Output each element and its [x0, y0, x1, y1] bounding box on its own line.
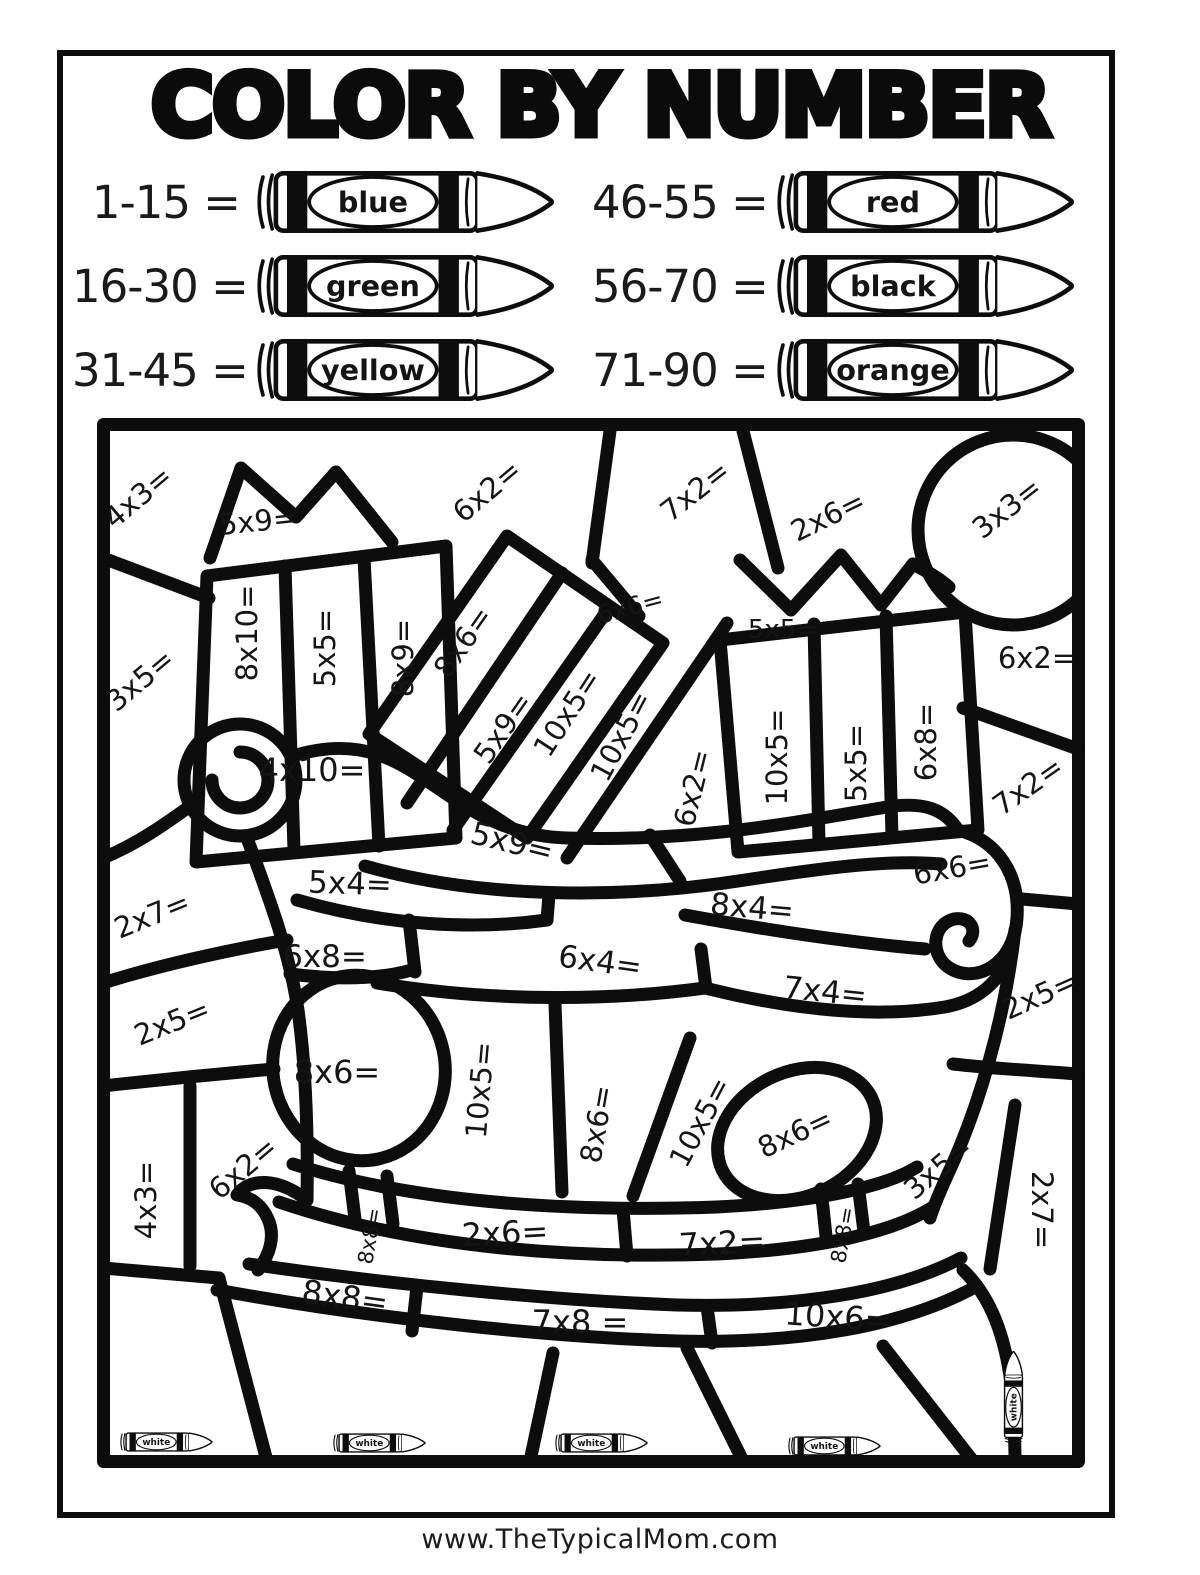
svg-text:white: white: [577, 1439, 605, 1449]
crayon-icon: green: [250, 251, 555, 321]
problem-label: 10x5=: [760, 709, 794, 806]
svg-text:white: white: [142, 1438, 170, 1448]
problem-label: 5x4=: [308, 865, 393, 904]
crayon-icon: black: [770, 251, 1075, 321]
legend-range: 71-90 =: [592, 344, 760, 397]
svg-text:white: white: [810, 1442, 838, 1452]
white-crayon-icon: white: [553, 1430, 648, 1456]
crayon-icon: white: [118, 1429, 213, 1455]
problem-label: 8x10=: [230, 585, 264, 682]
svg-text:blue: blue: [338, 185, 408, 219]
crayon-blue-icon: blue: [250, 167, 555, 237]
crayon-icon: white: [786, 1433, 881, 1459]
problem-label: 8x9=: [386, 619, 420, 697]
legend-row-orange: 71-90 = orange: [592, 328, 1120, 412]
crayon-icon: white: [553, 1430, 648, 1456]
coloring-puzzle: 4x3=5x9=6x2=7x2=2x6=3x3=3x5=8x10=5x5=8x9…: [97, 418, 1085, 1468]
crayon-icon: white: [1001, 1351, 1027, 1446]
problem-label: 5x5=: [308, 609, 342, 687]
problem-label: 4x3=: [129, 1161, 163, 1239]
problem-label: 6x2=: [998, 641, 1076, 675]
svg-text:yellow: yellow: [321, 353, 425, 387]
legend-row-black: 56-70 = black: [592, 244, 1120, 328]
legend-range: 16-30 =: [72, 260, 240, 313]
page-title: COLOR BY NUMBER: [0, 56, 1200, 156]
crayon-icon: blue: [250, 167, 555, 237]
problem-label: 10x6=: [783, 1294, 892, 1339]
crayon-red-icon: red: [770, 167, 1075, 237]
problem-label: 6x8=: [283, 939, 367, 975]
problem-label: 6x8=: [909, 703, 943, 781]
white-crayon-icon: white: [786, 1433, 881, 1459]
legend-row-blue: 1-15 = blue: [72, 160, 592, 244]
website-credit: www.TheTypicalMom.com: [0, 1524, 1200, 1555]
white-crayon-icon: white: [1001, 1351, 1027, 1446]
worksheet-page: { "title": "COLOR BY NUMBER", "footer": …: [0, 0, 1200, 1575]
svg-text:green: green: [326, 269, 420, 303]
white-crayon-icon: white: [331, 1430, 426, 1456]
crayon-icon: orange: [770, 335, 1075, 405]
crayon-orange-icon: orange: [770, 335, 1075, 405]
problem-label: 7x2=: [678, 1222, 766, 1264]
problem-label: 5x5=: [839, 724, 873, 802]
svg-text:red: red: [866, 185, 920, 219]
legend-row-green: 16-30 = green: [72, 244, 592, 328]
legend-range: 1-15 =: [72, 176, 240, 229]
legend-range: 46-55 =: [592, 176, 760, 229]
legend-range: 56-70 =: [592, 260, 760, 313]
crayon-icon: yellow: [250, 335, 555, 405]
svg-text:orange: orange: [836, 353, 949, 387]
legend-row-yellow: 31-45 = yellow: [72, 328, 592, 412]
legend-range: 31-45 =: [72, 344, 240, 397]
problem-label: 8x6=: [294, 1053, 380, 1091]
problem-label: 7x8 =: [532, 1303, 629, 1341]
svg-text:white: white: [355, 1439, 383, 1449]
crayon-icon: red: [770, 167, 1075, 237]
color-legend: 1-15 = blue 16-30 = green 31-45 =: [72, 160, 1120, 412]
white-crayon-icon: white: [118, 1429, 213, 1455]
svg-text:white: white: [1010, 1393, 1020, 1421]
crayon-green-icon: green: [250, 251, 555, 321]
crayon-black-icon: black: [770, 251, 1075, 321]
problem-label: 5x5=: [748, 615, 818, 645]
problem-label: 8x4=: [709, 886, 796, 929]
legend-row-red: 46-55 = red: [592, 160, 1120, 244]
problem-label: 4x10=: [259, 751, 366, 789]
crayon-yellow-icon: yellow: [250, 335, 555, 405]
crayon-icon: white: [331, 1430, 426, 1456]
problem-label: 2x7=: [1025, 1171, 1059, 1249]
svg-text:black: black: [850, 269, 937, 303]
problem-label: 2x6=: [461, 1212, 549, 1254]
